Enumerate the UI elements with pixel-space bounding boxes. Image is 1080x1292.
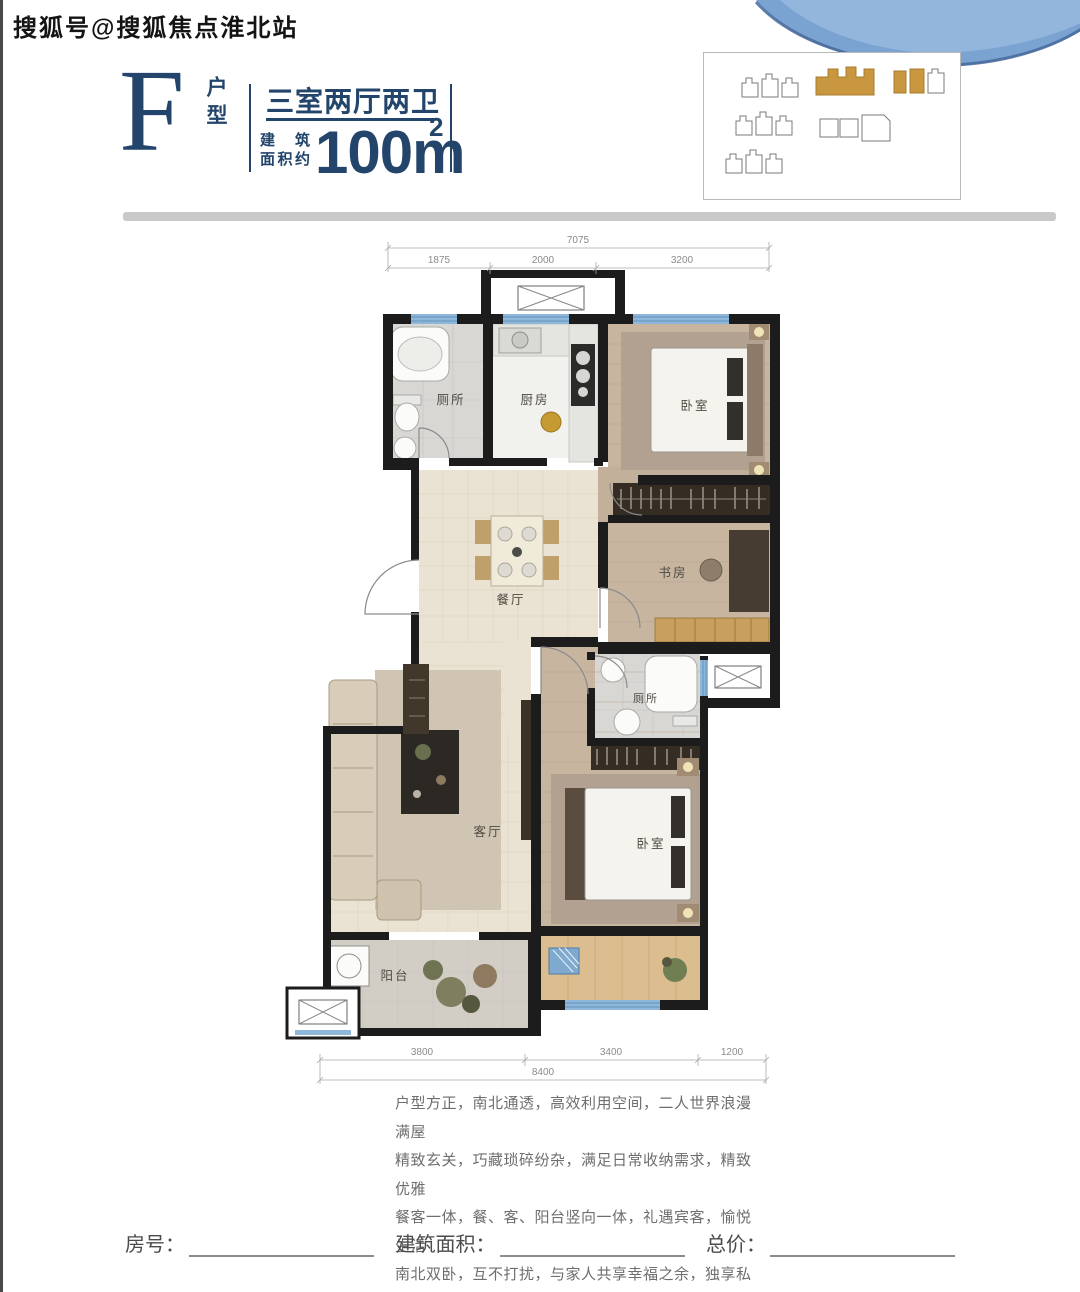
- room-label-bath1: 厕所: [436, 393, 465, 407]
- room-label-bath2: 厕所: [633, 692, 659, 705]
- form-price-blank: [770, 1233, 955, 1257]
- form-price-label: 总价：: [706, 1228, 766, 1257]
- header-divider: [450, 84, 452, 172]
- room-label-bedroom2: 卧室: [636, 836, 665, 851]
- header-area-superscript: 2: [429, 112, 443, 143]
- room-label-dining: 餐厅: [496, 592, 525, 607]
- description-line: 户型方正，南北通透，高效利用空间，二人世界浪漫满屋: [395, 1090, 765, 1147]
- poster: 搜狐号@搜狐焦点淮北站 F 户型 三室两厅两卫 建 筑 面积约 100m 2: [0, 0, 1080, 1292]
- description-paragraph: 户型方正，南北通透，高效利用空间，二人世界浪漫满屋 精致玄关，巧藏琐碎纷杂，满足…: [395, 1090, 765, 1292]
- floor-plan: 厕所 厨房 卧室 书房 餐厅 客厅 厕所 卧室 阳台 7075 1875 200…: [283, 232, 803, 1092]
- dimension-labels-top: 7075 1875 2000 3200: [428, 235, 694, 266]
- watermark: 搜狐号@搜狐焦点淮北站: [13, 8, 298, 43]
- section-divider-bar: [123, 212, 1056, 221]
- header-area-label-line2: 面积约: [260, 150, 310, 169]
- site-plan-building: [928, 69, 944, 93]
- dimension-bottom-total: 8400: [532, 1067, 555, 1078]
- form-room-number-label: 房号：: [125, 1228, 185, 1257]
- dimension-top-seg3: 3200: [671, 255, 694, 266]
- header-plan-letter: F: [119, 52, 185, 170]
- room-label-bedroom1: 卧室: [680, 398, 709, 413]
- form-price: 总价：: [706, 1228, 955, 1257]
- dimension-top-total: 7075: [567, 235, 590, 246]
- form-area: 建筑面积：: [396, 1228, 685, 1257]
- form-room-number: 房号：: [125, 1228, 374, 1257]
- header-area-label-line1: 建 筑: [260, 131, 310, 150]
- bottom-form: 房号： 建筑面积： 总价：: [125, 1228, 955, 1257]
- header-layout-title: 三室两厅两卫: [266, 80, 440, 120]
- dimension-top-seg1: 1875: [428, 255, 451, 266]
- room-label-kitchen: 厨房: [520, 392, 549, 407]
- dimension-bottom-seg3: 1200: [721, 1047, 744, 1058]
- room-label-living: 客厅: [473, 824, 502, 839]
- header-plan-type-label: 户型: [200, 76, 230, 132]
- form-room-number-blank: [189, 1233, 374, 1257]
- dimension-top-seg2: 2000: [532, 255, 555, 266]
- description-line: 精致玄关，巧藏琐碎纷杂，满足日常收纳需求，精致优雅: [395, 1147, 765, 1204]
- room-label-study: 书房: [658, 565, 687, 580]
- dimension-bottom-seg2: 3400: [600, 1047, 623, 1058]
- site-plan-building-highlighted: [816, 67, 924, 95]
- header-divider: [249, 84, 251, 172]
- site-plan: [703, 52, 961, 200]
- dimension-labels-bottom: 3800 3400 1200 8400: [411, 1047, 744, 1078]
- description-line: 南北双卧，互不打扰，与家人共享幸福之余，独享私密: [395, 1261, 765, 1292]
- dimension-bottom-seg1: 3800: [411, 1047, 434, 1058]
- form-area-blank: [500, 1233, 685, 1257]
- form-area-label: 建筑面积：: [396, 1228, 496, 1257]
- room-label-balcony: 阳台: [380, 968, 409, 983]
